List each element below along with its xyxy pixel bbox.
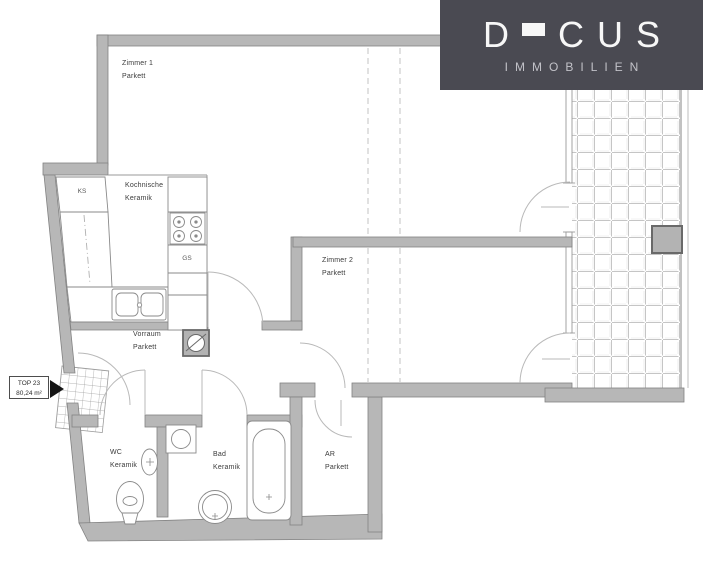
- wall-ar-east: [368, 397, 382, 532]
- logo-letter-d: D: [483, 17, 509, 53]
- unit-area: 80,24 m²: [10, 389, 48, 399]
- sink-basin-right: [141, 293, 163, 316]
- unit-number: TOP 23: [10, 379, 48, 389]
- wall-mid-south-right: [352, 383, 572, 397]
- bathtub-inner: [253, 429, 285, 513]
- logo-brand: D C U S: [483, 17, 660, 53]
- wall-west-upper: [97, 35, 108, 165]
- wall-terrace-south: [545, 388, 684, 402]
- room-label-wc: WC Keramik: [110, 446, 137, 472]
- roof-slope-lines: [70, 48, 400, 382]
- room-label-kochnische: Kochnische Keramik: [125, 179, 163, 205]
- wall-ar-west: [290, 397, 302, 525]
- toilet-tank: [122, 513, 138, 524]
- room-label-bad: Bad Keramik: [213, 448, 240, 474]
- room-label-vorraum: Vorraum Parkett: [133, 328, 161, 354]
- wall-zimmer2-west: [291, 237, 302, 330]
- wall-step: [43, 163, 108, 175]
- logo-letter-s: S: [636, 17, 660, 53]
- ar-door-arc: [315, 400, 352, 437]
- wall-vorraum-stub: [262, 321, 302, 330]
- logo-letter-c: C: [558, 17, 584, 53]
- wall-zimmer1-zimmer2-divider: [293, 237, 572, 247]
- sink-faucet: [137, 303, 141, 307]
- logo-letter-e-bars-icon: [522, 23, 545, 48]
- room-label-ar: AR Parkett: [325, 448, 349, 474]
- bath-fixtures: [117, 421, 292, 524]
- shaft: [183, 330, 209, 356]
- washing-machine-door: [172, 430, 191, 449]
- kitchen-counter-slant: [60, 212, 112, 287]
- room-label-zimmer2: Zimmer 2 Parkett: [322, 254, 353, 280]
- logo-subtitle: IMMOBILIEN: [498, 61, 646, 73]
- wall-wc-north-left: [72, 415, 98, 427]
- fridge-label: KS: [72, 188, 92, 195]
- kitchen-door-arc: [208, 272, 263, 327]
- logo-letter-u: U: [597, 17, 623, 53]
- zimmer2-terrace-door-arc: [520, 333, 570, 383]
- room-label-zimmer1: Zimmer 1 Parkett: [122, 57, 153, 83]
- sink-basin-left: [116, 293, 138, 316]
- toilet-seat: [123, 497, 137, 506]
- decus-logo: D C U S IMMOBILIEN: [440, 0, 703, 90]
- dishwasher-label: GS: [177, 255, 197, 262]
- terrace-pillar: [652, 226, 682, 253]
- zimmer2-door-arc: [300, 343, 345, 388]
- wall-mid-south-left: [280, 383, 315, 397]
- unit-badge: TOP 23 80,24 m²: [9, 376, 49, 399]
- bad-door-arc: [202, 370, 247, 415]
- kitchen-counter-column: [168, 177, 207, 330]
